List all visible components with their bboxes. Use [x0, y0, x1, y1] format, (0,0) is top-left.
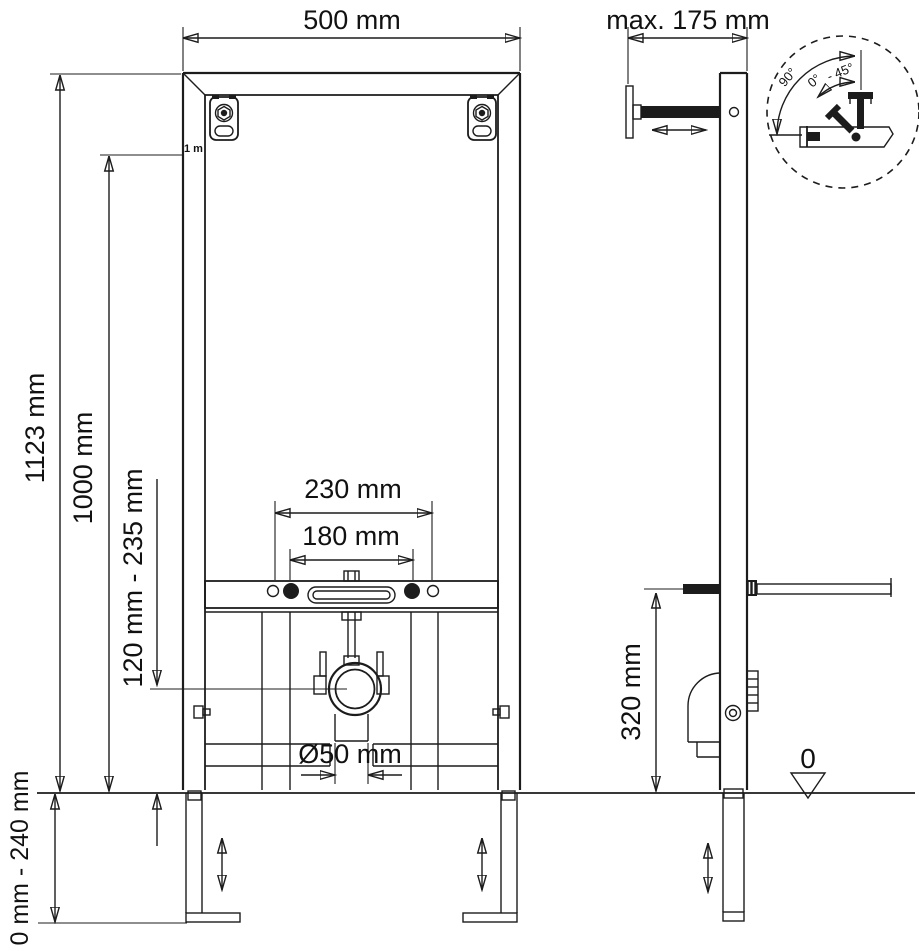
flush-pipe-slot — [308, 587, 395, 603]
right-post-clip — [493, 706, 509, 718]
one-meter-mark: 1 m — [184, 143, 203, 155]
outlet-height-label: 120 mm - 235 mm — [118, 468, 148, 687]
dim-inlet-height-320: 320 mm — [616, 593, 656, 791]
fixing-180-label: 180 mm — [302, 521, 400, 551]
water-inlet-assembly — [644, 578, 891, 597]
side-post — [720, 73, 747, 790]
depth-label: max. 175 mm — [606, 5, 770, 35]
datum-triangle-icon — [791, 773, 825, 798]
outlet-diameter-label: Ø50 mm — [298, 739, 402, 769]
right-adjustable-foot — [463, 791, 517, 922]
fixing-bolt-180-right — [404, 583, 420, 599]
fixing-hole-230-right — [428, 586, 439, 597]
bracket-bolt — [221, 110, 227, 116]
fixing-bolt-180-left — [283, 583, 299, 599]
dim-foot-adjust: 0 mm - 240 mm — [6, 770, 187, 945]
wall-anchor — [626, 86, 720, 138]
bracket-bolt — [479, 110, 485, 116]
height-1000-label: 1000 mm — [68, 412, 98, 525]
side-view: max. 175 mm 320 mm — [606, 5, 891, 921]
horizontal-pin — [807, 126, 820, 147]
side-adjustable-foot — [708, 789, 744, 921]
elbow-bolt — [726, 706, 741, 721]
foot-adjust-label: 0 mm - 240 mm — [6, 770, 34, 945]
cistern-crossbar — [205, 571, 498, 612]
detail-bubble — [767, 36, 919, 188]
mounting-frame-outline — [183, 73, 520, 790]
total-height-label: 1123 mm — [20, 373, 50, 484]
left-post-clip — [194, 706, 210, 718]
post-hole — [730, 108, 739, 117]
dim-outlet-diameter: Ø50 mm — [298, 739, 402, 784]
outlet-pipe-clamp — [314, 612, 389, 741]
vertical-screw — [848, 92, 873, 129]
floor-datum: 0 — [791, 743, 825, 798]
floor-datum-label: 0 — [800, 743, 816, 774]
left-adjustable-foot — [186, 791, 240, 922]
right-hanger-bracket — [468, 95, 496, 140]
angle-90-label: 90° — [775, 65, 799, 90]
fixing-230-label: 230 mm — [304, 474, 402, 504]
angle-detail-circle: 90° 0° - 45° — [767, 36, 919, 188]
inlet-height-label: 320 mm — [616, 643, 646, 741]
angle-0-label: 0° — [805, 71, 824, 90]
front-view: 500 mm 1123 mm 1000 mm 1 m 230 mm 180 mm — [6, 5, 520, 946]
dim-width-500: 500 mm — [183, 5, 520, 71]
fixing-hole-230-left — [268, 586, 279, 597]
wc-frame-technical-drawing: 500 mm 1123 mm 1000 mm 1 m 230 mm 180 mm — [0, 0, 919, 951]
width-label: 500 mm — [303, 5, 401, 35]
technical-drawing-canvas: 500 mm 1123 mm 1000 mm 1 m 230 mm 180 mm — [0, 0, 919, 951]
left-hanger-bracket — [210, 95, 238, 140]
angle-45-label: - 45° — [825, 60, 856, 84]
